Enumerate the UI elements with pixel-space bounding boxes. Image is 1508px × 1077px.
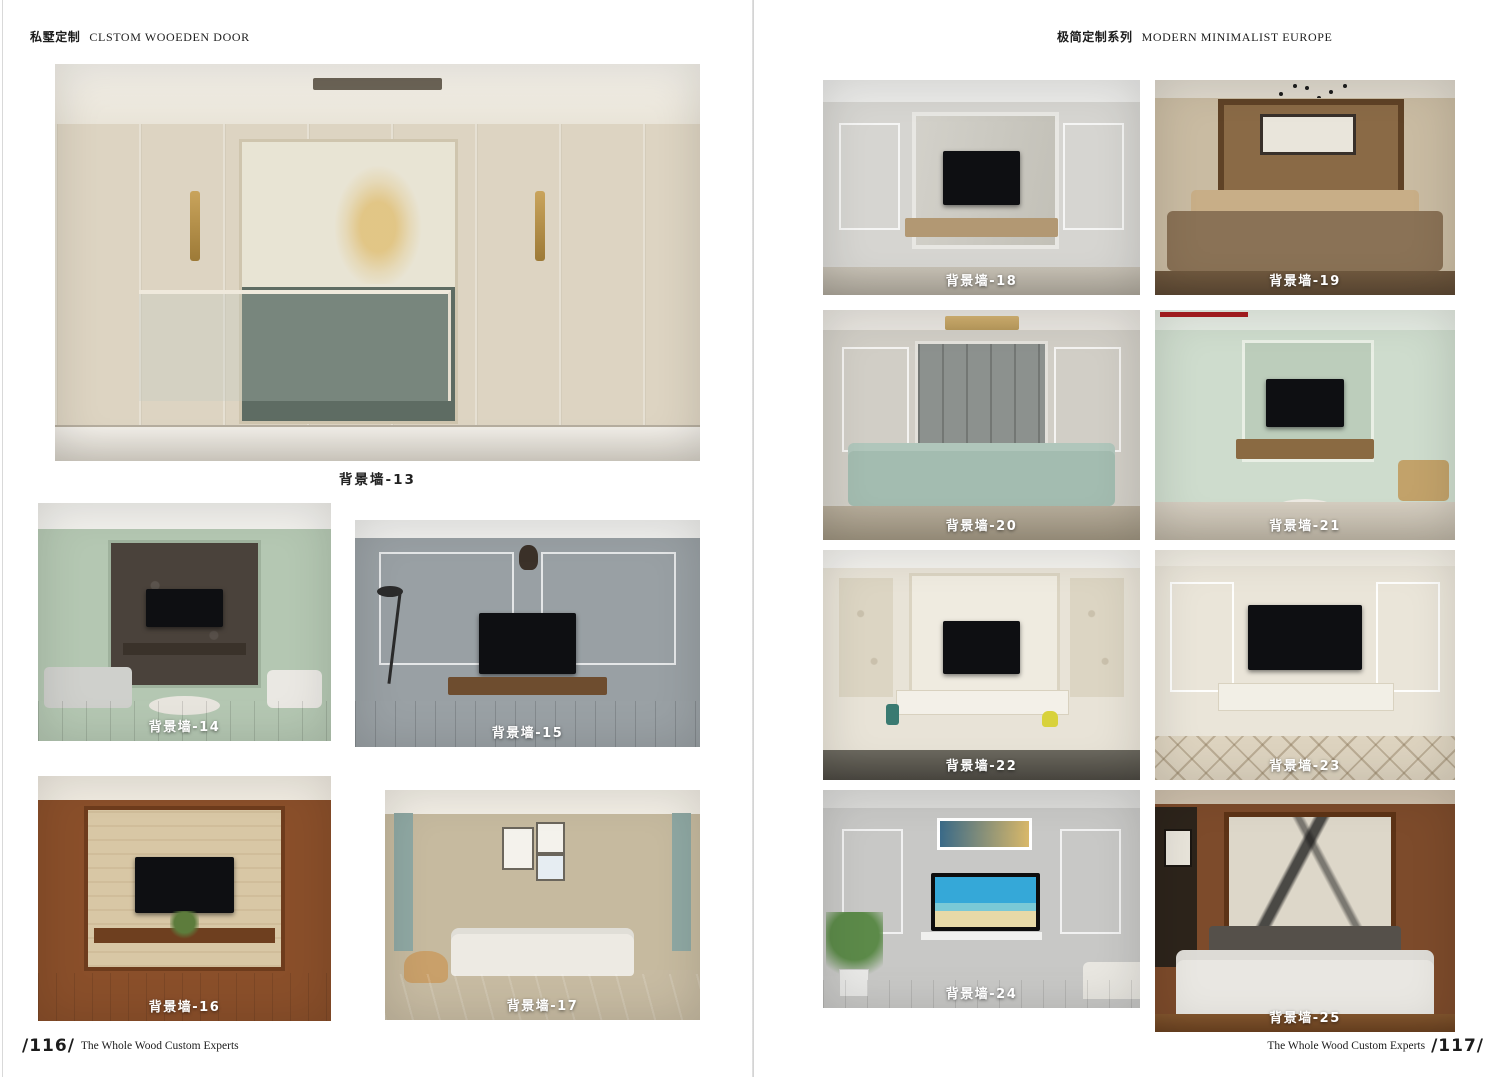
wood-sideboard <box>1236 439 1374 460</box>
ceiling <box>38 776 331 802</box>
white-console <box>896 690 1069 715</box>
sputnik-chandelier <box>1305 86 1309 90</box>
photo-bg-wall-20: 背景墙-20 <box>823 310 1140 540</box>
red-accent-bar <box>1160 312 1248 317</box>
ceiling <box>355 520 700 538</box>
gold-chandelier <box>313 134 443 284</box>
ceiling <box>1155 790 1455 804</box>
floor-lamp-shade <box>377 586 403 597</box>
tv-screen <box>146 589 222 627</box>
photo-label: 背景墙-14 <box>38 716 331 735</box>
photo-label: 背景墙-15 <box>355 722 700 741</box>
glass-stair-railing <box>139 290 452 401</box>
right-page-footer: The Whole Wood Custom Experts/117/ <box>1261 1036 1484 1056</box>
ceiling-vent <box>313 78 442 90</box>
left-page-header: 私墅定制CLSTOM WOOEDEN DOOR <box>30 28 250 45</box>
center-gutter-line <box>752 0 754 1077</box>
small-wall-art <box>1164 829 1192 867</box>
ceiling <box>38 503 331 530</box>
wall-sconce-left <box>190 191 200 261</box>
left-footer-tagline: The Whole Wood Custom Experts <box>81 1040 239 1052</box>
gallery-frame-3 <box>536 854 565 881</box>
tv-screen <box>135 857 235 913</box>
ceiling <box>823 80 1140 103</box>
white-tv-stand <box>921 932 1041 941</box>
photo-label: 背景墙-16 <box>38 996 331 1015</box>
photo-bg-wall-25: 背景墙-25 <box>1155 790 1455 1032</box>
wall-moulding-frame-left <box>1170 582 1234 692</box>
white-console <box>1218 683 1394 710</box>
teal-vase <box>886 704 899 725</box>
right-footer-tagline: The Whole Wood Custom Experts <box>1267 1040 1425 1052</box>
white-sofa <box>451 928 634 976</box>
tv-console <box>905 218 1057 237</box>
tv-screen <box>1266 379 1344 427</box>
floral-panel-left <box>839 578 893 698</box>
catalog-spread: 私墅定制CLSTOM WOOEDEN DOOR 背景墙-13 背景墙-14 <box>0 0 1508 1077</box>
photo-label: 背景墙-24 <box>823 983 1140 1002</box>
wood-console <box>448 677 607 695</box>
gallery-frame-2 <box>536 822 565 854</box>
right-header-chinese: 极简定制系列 <box>1057 30 1133 44</box>
tv-screen-beach-image <box>931 873 1040 931</box>
photo-bg-wall-16: 背景墙-16 <box>38 776 331 1021</box>
wall-moulding-frame-right <box>1054 347 1121 452</box>
photo-label: 背景墙-25 <box>1155 1007 1455 1026</box>
curtain-right <box>672 813 691 951</box>
photo-label: 背景墙-23 <box>1155 755 1455 774</box>
ceiling <box>385 790 700 814</box>
dark-center-panels <box>918 344 1045 444</box>
marble-floor <box>55 425 700 461</box>
photo-label: 背景墙-21 <box>1155 515 1455 534</box>
photo-bg-wall-23: 背景墙-23 <box>1155 550 1455 780</box>
photo-bg-wall-19: 背景墙-19 <box>1155 80 1455 295</box>
right-page-header: 极简定制系列MODERN MINIMALIST EUROPE <box>1057 28 1332 45</box>
teal-sofa <box>848 443 1114 505</box>
photo-label: 背景墙-18 <box>823 270 1140 289</box>
photo-label: 背景墙-17 <box>385 995 700 1014</box>
photo-caption-13: 背景墙-13 <box>55 468 700 488</box>
headboard <box>1209 926 1401 953</box>
wall-sconce-right <box>535 191 545 261</box>
wall-moulding-frame-right <box>1376 582 1440 692</box>
gallery-frame-1 <box>502 827 534 870</box>
lounge-chair <box>1398 460 1449 501</box>
photo-bg-wall-22: 背景墙-22 <box>823 550 1140 780</box>
framed-artwork <box>1260 114 1356 154</box>
floral-panel-right <box>1070 578 1124 698</box>
photo-bg-wall-15: 背景墙-15 <box>355 520 700 747</box>
yellow-vase <box>1042 711 1058 727</box>
right-header-english: MODERN MINIMALIST EUROPE <box>1142 30 1333 44</box>
ceiling <box>55 64 700 124</box>
photo-label: 背景墙-20 <box>823 515 1140 534</box>
photo-bg-wall-17: 背景墙-17 <box>385 790 700 1020</box>
ceiling <box>1155 550 1455 566</box>
photo-bg-wall-13 <box>55 64 700 461</box>
tv-screen <box>943 621 1019 674</box>
framed-seascape-art <box>937 818 1032 850</box>
photo-bg-wall-14: 背景墙-14 <box>38 503 331 741</box>
wall-moulding-frame-right <box>1063 123 1124 230</box>
curtain-left <box>394 813 413 951</box>
photo-label: 背景墙-22 <box>823 755 1140 774</box>
deer-head-decor <box>519 545 538 570</box>
ink-art-panel <box>1224 812 1396 933</box>
ceiling <box>823 550 1140 568</box>
photo-bg-wall-21: 背景墙-21 <box>1155 310 1455 540</box>
page-edge-line <box>2 0 3 1077</box>
tv-screen <box>943 151 1019 205</box>
left-page-footer: /116/The Whole Wood Custom Experts <box>22 1036 245 1056</box>
tv-screen <box>1248 605 1362 669</box>
left-page-number: /116/ <box>22 1036 75 1056</box>
bed <box>1167 211 1443 271</box>
wall-moulding-frame-left <box>839 123 900 230</box>
photo-bg-wall-24: 背景墙-24 <box>823 790 1140 1008</box>
gold-chandelier <box>945 316 1019 330</box>
left-header-english: CLSTOM WOOEDEN DOOR <box>89 30 249 44</box>
right-page-number: /117/ <box>1431 1036 1484 1056</box>
wall-moulding-frame-right <box>1060 829 1121 933</box>
left-header-chinese: 私墅定制 <box>30 30 80 44</box>
photo-bg-wall-18: 背景墙-18 <box>823 80 1140 295</box>
table-plant <box>170 911 199 940</box>
photo-label: 背景墙-19 <box>1155 270 1455 289</box>
wall-moulding-frame-left <box>842 347 909 452</box>
tv-screen <box>479 613 576 674</box>
tv-console <box>123 643 246 655</box>
